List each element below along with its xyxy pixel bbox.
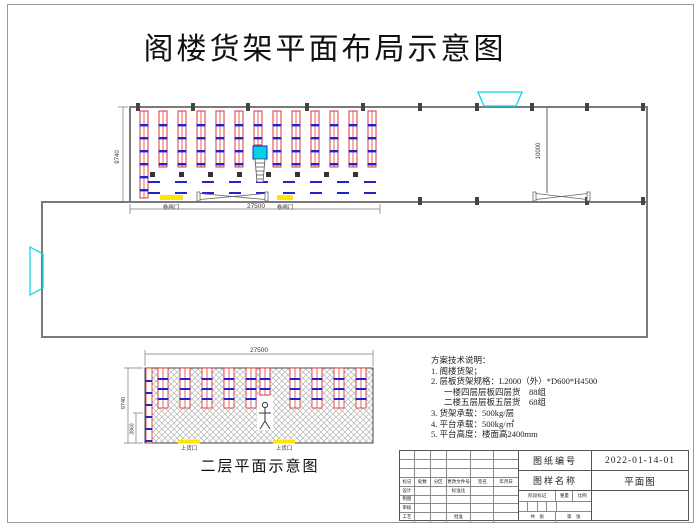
rack-beam bbox=[202, 378, 213, 380]
rack-beam bbox=[312, 378, 323, 380]
dim-width-bottom: 27500 bbox=[247, 203, 265, 210]
note-line: 3. 货架承载：500kg/层 bbox=[431, 408, 646, 419]
column bbox=[191, 103, 195, 111]
drawing-no-value: 2022-01-14-01 bbox=[592, 451, 688, 471]
interior-column bbox=[237, 172, 242, 177]
rack-beam bbox=[224, 378, 235, 380]
stage-label: 阶段标记 bbox=[519, 491, 556, 502]
dock-top-icon bbox=[478, 92, 522, 106]
rack-beam bbox=[292, 150, 301, 152]
rack-beam bbox=[246, 398, 257, 400]
rack-beam bbox=[246, 388, 257, 390]
rack-beam bbox=[368, 163, 377, 165]
rack-beam bbox=[311, 163, 320, 165]
tb-count: 处数 bbox=[415, 478, 431, 486]
rack-beam bbox=[224, 398, 235, 400]
goods-lift-icon bbox=[253, 146, 267, 159]
rack-beam bbox=[368, 137, 377, 139]
rack-beam bbox=[180, 398, 191, 400]
technical-notes: 方案技术说明： 1. 阁楼货架； 2. 层板货架规格：L2000（外）*D600… bbox=[431, 355, 646, 440]
rack-beam bbox=[197, 137, 206, 139]
rack-beam bbox=[246, 378, 257, 380]
rack-beam bbox=[273, 150, 282, 152]
building-outline bbox=[42, 107, 647, 337]
beam-mark bbox=[148, 192, 160, 194]
rack-beam bbox=[146, 440, 153, 442]
note-line: 一楼四层层板四层货 88组 bbox=[431, 387, 646, 398]
note-line: 二楼五层层板五层货 68组 bbox=[431, 397, 646, 408]
rack-beam bbox=[330, 163, 339, 165]
roller-door-right bbox=[277, 195, 293, 200]
rack-beam bbox=[356, 388, 367, 390]
rack-beam bbox=[290, 398, 301, 400]
rack-beam bbox=[159, 137, 168, 139]
beam-mark bbox=[337, 192, 349, 194]
rack-beam bbox=[180, 378, 191, 380]
rack-beam bbox=[290, 388, 301, 390]
rack-beam bbox=[273, 137, 282, 139]
rack-beam bbox=[146, 380, 153, 382]
rack-beam bbox=[235, 163, 244, 165]
rack-beam bbox=[146, 404, 153, 406]
rack-beam bbox=[349, 124, 358, 126]
rack-beam bbox=[158, 398, 169, 400]
rack-beam bbox=[349, 163, 358, 165]
rack-beam bbox=[159, 124, 168, 126]
rack-beam bbox=[158, 388, 169, 390]
rack-beam bbox=[312, 398, 323, 400]
rack-beam bbox=[216, 150, 225, 152]
rack-beam bbox=[349, 150, 358, 152]
rack-beam bbox=[140, 124, 149, 126]
note-line: 5. 平台高度：楼面高2400mm bbox=[431, 429, 646, 440]
interior-column bbox=[266, 172, 271, 177]
second-floor-plan: 上货口 上货口 27500 9740 3860 bbox=[120, 345, 390, 460]
rack-beam bbox=[140, 163, 149, 165]
title-block-values: 2022-01-14-01 平面图 bbox=[592, 451, 688, 520]
interior-column bbox=[295, 172, 300, 177]
beam-mark bbox=[229, 181, 241, 183]
dim-height-left: 9740 bbox=[115, 150, 121, 164]
rack-beam bbox=[368, 124, 377, 126]
page-title: 阁楼货架平面布局示意图 bbox=[125, 24, 525, 68]
second-floor-caption: 二层平面示意图 bbox=[150, 455, 370, 476]
revision-grid: 标记 处数 分区 更改文件号 签名 年月日 设计 标准化 制图 审核 bbox=[400, 451, 519, 520]
rack-beam bbox=[254, 124, 263, 126]
note-line: 2. 层板货架规格：L2000（外）*D600*H4500 bbox=[431, 376, 646, 387]
note-line: 1. 阁楼货架； bbox=[431, 366, 646, 377]
rack-beam bbox=[330, 150, 339, 152]
beam-mark bbox=[283, 192, 295, 194]
column bbox=[585, 103, 589, 111]
interior-column bbox=[179, 172, 184, 177]
rack-beam bbox=[235, 150, 244, 152]
note-line: 4. 平台承载：500kg/㎡ bbox=[431, 419, 646, 430]
beam-mark bbox=[310, 192, 322, 194]
rack-beam bbox=[158, 378, 169, 380]
rack-beam bbox=[146, 428, 153, 430]
building-columns bbox=[136, 103, 645, 205]
rack-beam bbox=[159, 163, 168, 165]
column bbox=[641, 103, 645, 111]
rack-beam bbox=[197, 150, 206, 152]
rack-beam bbox=[260, 378, 271, 380]
loading-port-left bbox=[178, 440, 200, 444]
sheets-total: 共 张 bbox=[519, 512, 556, 522]
dim2-width-top: 27500 bbox=[250, 347, 268, 354]
beam-mark bbox=[310, 181, 322, 183]
rack-beam bbox=[197, 124, 206, 126]
column bbox=[361, 103, 365, 111]
rack-beam bbox=[334, 388, 345, 390]
rack-beam bbox=[349, 137, 358, 139]
sheet-no: 第 张 bbox=[556, 512, 591, 522]
loading-right-label: 上货口 bbox=[276, 444, 293, 452]
beam-mark bbox=[202, 181, 214, 183]
beam-mark bbox=[175, 192, 187, 194]
tb-date: 年月日 bbox=[494, 478, 518, 486]
rack-beam bbox=[140, 150, 149, 152]
rack-beam bbox=[312, 388, 323, 390]
beam-mark bbox=[283, 181, 295, 183]
interior-column bbox=[208, 172, 213, 177]
rack-beam bbox=[140, 176, 149, 178]
column bbox=[475, 103, 479, 111]
rack-beam bbox=[273, 163, 282, 165]
rack-beam bbox=[197, 163, 206, 165]
interior-column bbox=[353, 172, 358, 177]
scale-label: 比例 bbox=[573, 491, 591, 502]
beam-mark bbox=[175, 181, 187, 183]
tb-audit: 审核 bbox=[400, 504, 415, 512]
beam-marks bbox=[148, 181, 376, 194]
column bbox=[418, 103, 422, 111]
loading-port-right bbox=[273, 440, 295, 444]
tb-draft: 制图 bbox=[400, 496, 415, 503]
column bbox=[641, 197, 645, 205]
rack-beam bbox=[368, 150, 377, 152]
rack-beam bbox=[178, 137, 187, 139]
tb-standard: 标准化 bbox=[447, 487, 472, 495]
rack-beam bbox=[254, 137, 263, 139]
dim2-aisle-depth: 3860 bbox=[130, 423, 136, 434]
rack-beam bbox=[260, 388, 271, 390]
column bbox=[305, 103, 309, 111]
rack-beam bbox=[180, 388, 191, 390]
rack-beam bbox=[216, 137, 225, 139]
first-floor-plan: 9740 27500 10000 卷闸门 卷闸门 bbox=[20, 85, 675, 350]
interior-column bbox=[150, 172, 155, 177]
tb-sign: 签名 bbox=[471, 478, 494, 486]
rack-beam bbox=[292, 137, 301, 139]
rack-beam bbox=[292, 124, 301, 126]
tb-design: 设计 bbox=[400, 487, 415, 495]
rack-beam bbox=[178, 163, 187, 165]
weight-label: 重量 bbox=[556, 491, 573, 502]
door-left-label: 卷闸门 bbox=[163, 203, 180, 211]
title-block-labels: 图纸编号 图样名称 阶段标记 重量 比例 共 张 第 张 bbox=[519, 451, 592, 520]
rack-beam bbox=[311, 124, 320, 126]
rack-beam bbox=[273, 124, 282, 126]
beam-mark bbox=[337, 181, 349, 183]
roller-door-left bbox=[160, 195, 183, 200]
sliding-door-icon-right bbox=[533, 192, 590, 201]
rack-beam bbox=[178, 124, 187, 126]
rack-beam bbox=[235, 124, 244, 126]
beam-mark bbox=[229, 192, 241, 194]
beam-mark bbox=[364, 181, 376, 183]
notes-heading: 方案技术说明： bbox=[431, 355, 646, 366]
column bbox=[475, 197, 479, 205]
rack-beam bbox=[216, 124, 225, 126]
rack-beam bbox=[292, 163, 301, 165]
tb-change-doc: 更改文件号 bbox=[447, 478, 472, 486]
rack-beam bbox=[202, 388, 213, 390]
rack-beam bbox=[330, 124, 339, 126]
rack-beam bbox=[178, 150, 187, 152]
rack-beam bbox=[311, 150, 320, 152]
beam-mark bbox=[148, 181, 160, 183]
rack-beam bbox=[140, 137, 149, 139]
title-block: 标记 处数 分区 更改文件号 签名 年月日 设计 标准化 制图 审核 bbox=[399, 450, 689, 521]
rack-beam bbox=[330, 137, 339, 139]
rack-beam bbox=[290, 378, 301, 380]
tb-mark: 标记 bbox=[400, 478, 415, 486]
rack-beam bbox=[140, 189, 149, 191]
rack-beam bbox=[159, 150, 168, 152]
stairs-icon bbox=[255, 159, 265, 182]
rack-beam bbox=[356, 378, 367, 380]
rack-beam bbox=[356, 398, 367, 400]
dim-height-right: 10000 bbox=[536, 142, 542, 159]
beam-mark bbox=[364, 192, 376, 194]
tb-zone: 分区 bbox=[431, 478, 447, 486]
rack-beam bbox=[146, 392, 153, 394]
drawing-sheet: 阁楼货架平面布局示意图 bbox=[0, 0, 700, 527]
tb-craft: 工艺 bbox=[400, 513, 415, 522]
rack-beam bbox=[146, 416, 153, 418]
rack-beam bbox=[334, 398, 345, 400]
column bbox=[136, 103, 140, 111]
tb-approve: 批准 bbox=[447, 513, 472, 522]
rack-beam bbox=[216, 163, 225, 165]
rack-beam bbox=[334, 378, 345, 380]
column bbox=[530, 103, 534, 111]
rack-beam bbox=[235, 137, 244, 139]
rack-beam bbox=[224, 388, 235, 390]
column bbox=[246, 103, 250, 111]
dim2-height-left: 9740 bbox=[121, 397, 127, 409]
drawing-name-label: 图样名称 bbox=[519, 471, 591, 491]
door-right-label: 卷闸门 bbox=[277, 203, 294, 211]
rack-beam bbox=[311, 137, 320, 139]
drawing-name-value: 平面图 bbox=[592, 471, 688, 491]
rack-beam bbox=[202, 398, 213, 400]
drawing-no-label: 图纸编号 bbox=[519, 451, 591, 471]
interior-column bbox=[324, 172, 329, 177]
loading-left-label: 上货口 bbox=[181, 444, 198, 452]
column bbox=[418, 197, 422, 205]
